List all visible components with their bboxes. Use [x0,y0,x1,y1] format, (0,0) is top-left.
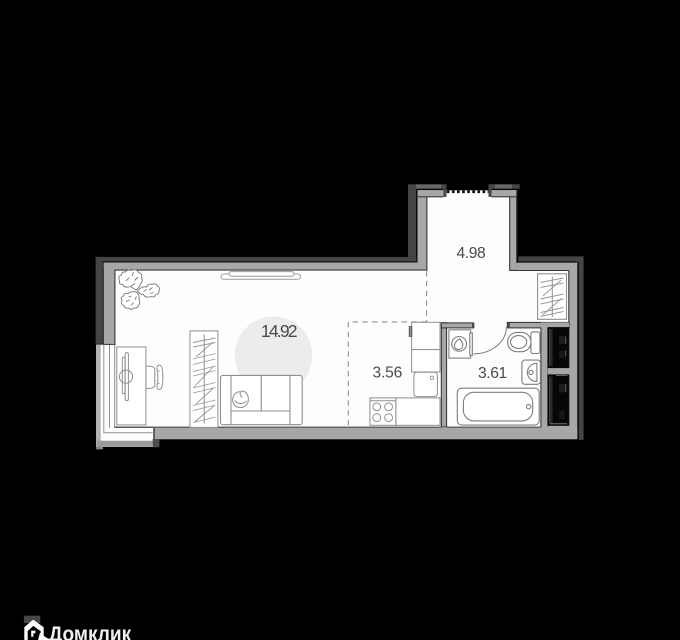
svg-text:4.98: 4.98 [457,245,486,262]
svg-text:Домклик: Домклик [49,623,132,640]
svg-text:3.56: 3.56 [373,364,403,381]
svg-text:3.61: 3.61 [478,365,507,382]
svg-text:14.92: 14.92 [261,321,297,341]
